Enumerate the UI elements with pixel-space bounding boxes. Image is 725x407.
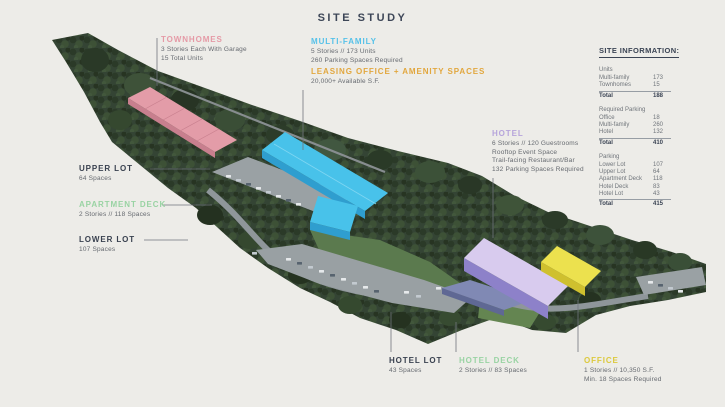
office-detail: 1 Stories // 10,350 S.F. bbox=[584, 367, 662, 376]
page-title: SITE STUDY bbox=[0, 12, 725, 24]
office-label: OFFICE bbox=[584, 356, 662, 365]
hotel-detail: Trail-facing Restaurant/Bar bbox=[492, 157, 584, 166]
table-row: Upper Lot 64 bbox=[599, 169, 671, 176]
hotel-detail: Rooftop Event Space bbox=[492, 149, 584, 158]
hotel-lot-label: HOTEL LOT bbox=[389, 356, 442, 365]
callout-lower-lot: LOWER LOT 107 Spaces bbox=[79, 235, 135, 255]
site-info-section-units: Units Multi-family 173 Townhomes 15 Tota… bbox=[599, 67, 711, 100]
table-total-row: Total 188 bbox=[599, 91, 671, 100]
table-row: Multi-family 173 bbox=[599, 75, 671, 82]
multi-family-label: MULTI-FAMILY bbox=[311, 37, 403, 46]
callout-leasing-office: LEASING OFFICE + AMENITY SPACES 20,000+ … bbox=[311, 67, 485, 87]
section-heading: Required Parking bbox=[599, 107, 711, 114]
hotel-deck-detail: 2 Stories // 83 Spaces bbox=[459, 367, 527, 376]
multi-family-detail: 260 Parking Spaces Required bbox=[311, 57, 403, 66]
table-row: Hotel 132 bbox=[599, 129, 671, 136]
table-row: Hotel Lot 43 bbox=[599, 191, 671, 198]
callout-apartment-deck: APARTMENT DECK 2 Stories // 118 Spaces bbox=[79, 200, 166, 220]
callout-hotel: HOTEL 6 Stories // 120 Guestrooms Roofto… bbox=[492, 129, 584, 174]
site-info-section-required-parking: Required Parking Office 18 Multi-family … bbox=[599, 107, 711, 147]
leasing-office-detail: 20,000+ Available S.F. bbox=[311, 78, 485, 87]
section-heading: Units bbox=[599, 67, 711, 74]
table-total-row: Total 410 bbox=[599, 138, 671, 147]
hotel-detail: 132 Parking Spaces Required bbox=[492, 166, 584, 175]
table-row: Hotel Deck 83 bbox=[599, 184, 671, 191]
callout-office: OFFICE 1 Stories // 10,350 S.F. Min. 18 … bbox=[584, 356, 662, 384]
apartment-deck-label: APARTMENT DECK bbox=[79, 200, 166, 209]
site-study-page: SITE STUDY TOWNHOMES 3 Stories Each With… bbox=[0, 0, 725, 407]
callout-townhomes: TOWNHOMES 3 Stories Each With Garage 15 … bbox=[161, 35, 247, 63]
callout-hotel-deck: HOTEL DECK 2 Stories // 83 Spaces bbox=[459, 356, 527, 376]
table-row: Apartment Deck 118 bbox=[599, 176, 671, 183]
hotel-label: HOTEL bbox=[492, 129, 584, 138]
leasing-office-label: LEASING OFFICE + AMENITY SPACES bbox=[311, 67, 485, 76]
hotel-detail: 6 Stories // 120 Guestrooms bbox=[492, 140, 584, 149]
apartment-deck-detail: 2 Stories // 118 Spaces bbox=[79, 211, 166, 220]
lower-lot-label: LOWER LOT bbox=[79, 235, 135, 244]
hotel-deck-label: HOTEL DECK bbox=[459, 356, 527, 365]
townhomes-detail: 15 Total Units bbox=[161, 55, 247, 64]
section-heading: Parking bbox=[599, 154, 711, 161]
callout-multi-family: MULTI-FAMILY 5 Stories // 173 Units 260 … bbox=[311, 37, 403, 65]
table-total-row: Total 415 bbox=[599, 199, 671, 208]
multi-family-detail: 5 Stories // 173 Units bbox=[311, 48, 403, 57]
upper-lot-label: UPPER LOT bbox=[79, 164, 133, 173]
site-information-panel: SITE INFORMATION: Units Multi-family 173… bbox=[599, 40, 711, 215]
table-row: Office 18 bbox=[599, 115, 671, 122]
site-information-heading: SITE INFORMATION: bbox=[599, 46, 679, 58]
townhomes-detail: 3 Stories Each With Garage bbox=[161, 46, 247, 55]
lower-lot-detail: 107 Spaces bbox=[79, 246, 135, 255]
hotel-lot-detail: 43 Spaces bbox=[389, 367, 442, 376]
callout-hotel-lot: HOTEL LOT 43 Spaces bbox=[389, 356, 442, 376]
site-info-section-parking: Parking Lower Lot 107 Upper Lot 64 Apart… bbox=[599, 154, 711, 208]
office-detail: Min. 18 Spaces Required bbox=[584, 376, 662, 385]
table-row: Townhomes 15 bbox=[599, 82, 671, 89]
upper-lot-detail: 64 Spaces bbox=[79, 175, 133, 184]
table-row: Multi-family 260 bbox=[599, 122, 671, 129]
callout-upper-lot: UPPER LOT 64 Spaces bbox=[79, 164, 133, 184]
table-row: Lower Lot 107 bbox=[599, 162, 671, 169]
townhomes-label: TOWNHOMES bbox=[161, 35, 247, 44]
